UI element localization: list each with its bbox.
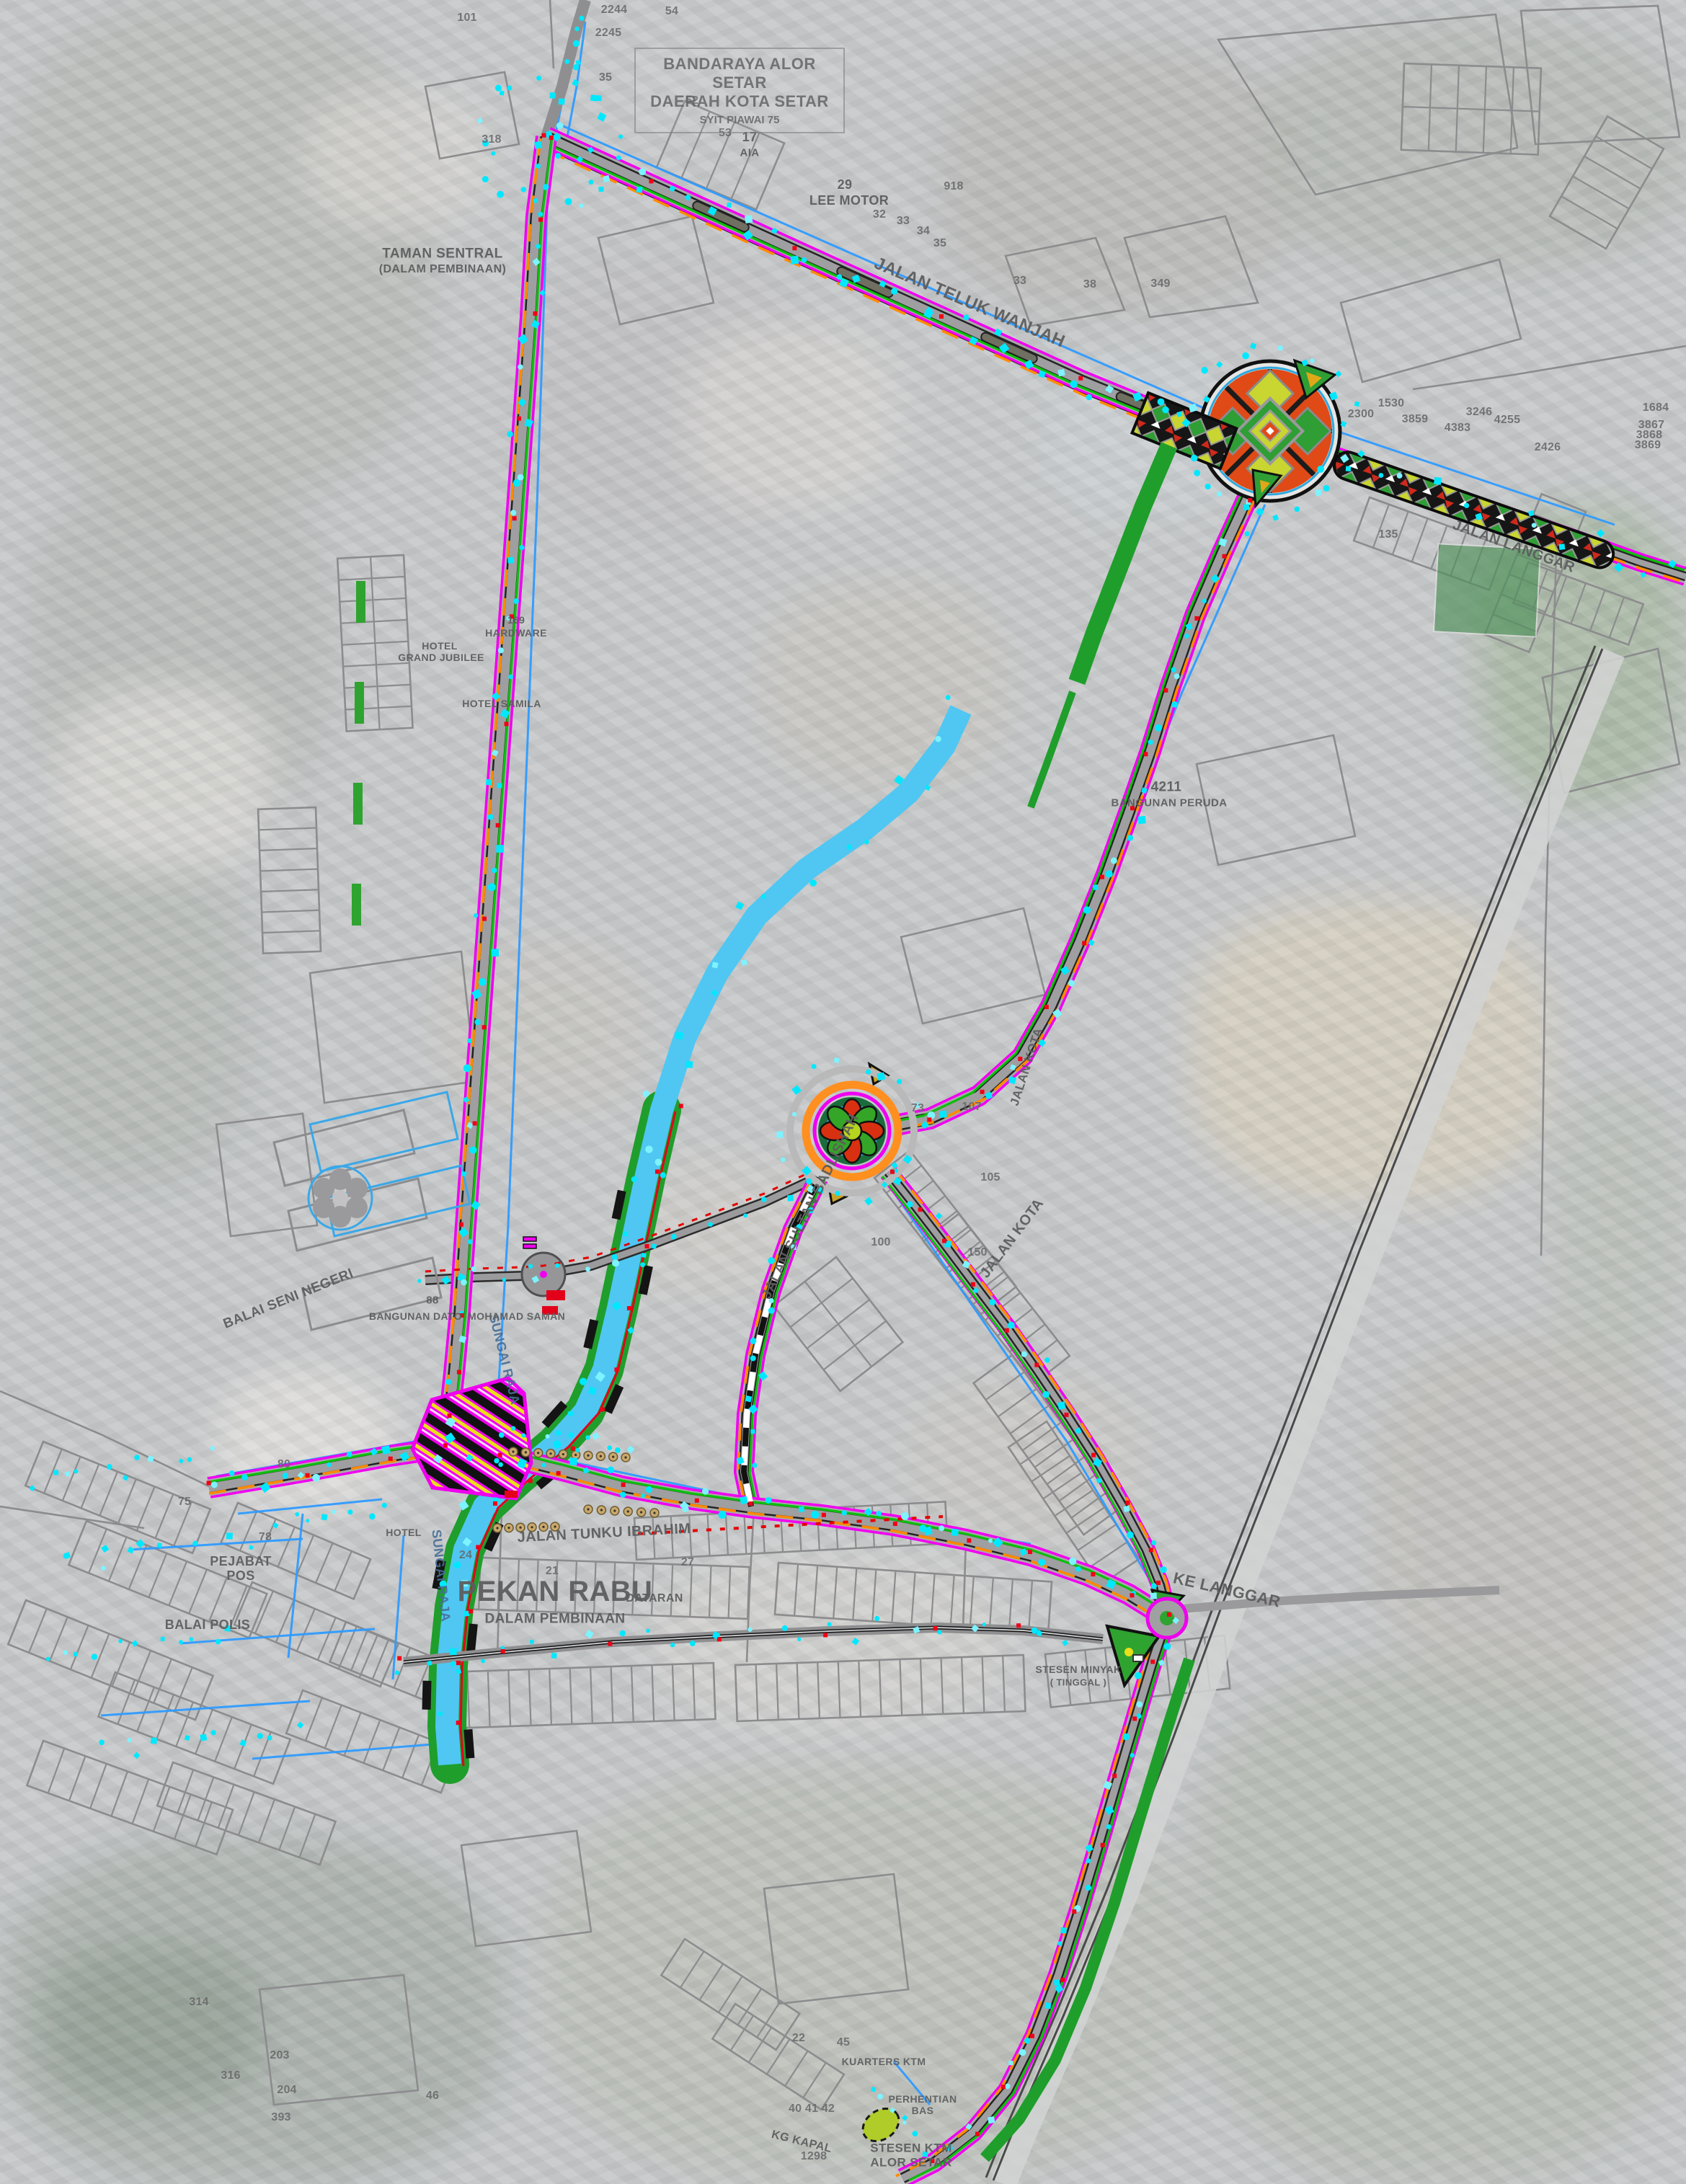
lot-number: 203 (270, 2050, 289, 2061)
lot-number: 33 (1013, 275, 1026, 287)
lot-number: 73 (911, 1103, 924, 1114)
place-label: 169 (507, 615, 525, 625)
lot-number: 107 (962, 1101, 981, 1113)
place-label: HOTEL (422, 641, 457, 651)
lot-number: 918 (944, 181, 963, 192)
lot-number: 3859 (1402, 414, 1428, 425)
road-label: JALAN TELUK WANJAH (871, 254, 1067, 350)
lot-number: 3246 (1466, 407, 1492, 418)
lot-number: 22 (792, 2033, 805, 2044)
place-label: STESEN MINYAK (1035, 1664, 1121, 1674)
lot-number: 318 (482, 134, 501, 146)
lot-number: 54 (665, 6, 678, 17)
lot-number: 135 (1378, 529, 1398, 541)
lot-number: 1298 (801, 2151, 827, 2162)
lot-number: 100 (871, 1237, 890, 1248)
road-label: JALAN TUNKU IBRAHIM (517, 1522, 691, 1545)
lot-number: 2245 (595, 27, 621, 39)
lot-number: 101 (457, 12, 476, 24)
place-label: BANGUNAN DATO' MOHAMAD SAMAN (369, 1311, 565, 1321)
lot-number: 150 (967, 1247, 987, 1259)
place-label: BAS (912, 2105, 934, 2116)
place-label: DALAM PEMBINAAN (485, 1612, 626, 1626)
map-labels-layer: JALAN TELUK WANJAHJALAN LANGGARJALAN SUL… (0, 0, 1686, 2184)
lot-number: 34 (917, 226, 930, 237)
lot-number: 35 (599, 72, 612, 84)
lot-number: 1684 (1643, 402, 1669, 414)
lot-number: 2426 (1535, 442, 1561, 453)
place-label: POS (226, 1569, 254, 1582)
place-label: (DALAM PEMBINAAN) (379, 264, 507, 275)
lot-number: 4255 (1494, 414, 1520, 426)
lot-number: 1530 (1378, 398, 1404, 409)
place-label: TAMAN SENTRAL (382, 247, 502, 261)
place-label: 88 (426, 1295, 439, 1306)
lot-number: 78 (259, 1532, 272, 1543)
road-label: JALAN SULTAN BADLISHAH (759, 1112, 861, 1302)
lot-number: 2244 (601, 4, 627, 16)
place-label: HOTEL (386, 1527, 421, 1537)
place-label: PEKAN RABU (458, 1577, 653, 1606)
lot-number: 75 (178, 1496, 191, 1508)
place-label: AIA (740, 148, 759, 159)
title-sheet: SYIT PIAWAI 75 (639, 114, 840, 126)
title-district: DAERAH KOTA SETAR (639, 92, 840, 111)
place-label: HOTEL SAMILA (462, 698, 541, 709)
road-label: SUNGAI RAJA (430, 1529, 452, 1623)
lot-number: 105 (980, 1172, 1000, 1184)
road-label: JALAN KOTA (977, 1197, 1046, 1281)
lot-number: 46 (426, 2090, 439, 2102)
place-label: 4211 (1151, 781, 1182, 794)
lot-number: 204 (277, 2085, 296, 2096)
lot-number: 393 (271, 2112, 290, 2123)
title-city: BANDARAYA ALOR SETAR (639, 55, 840, 92)
lot-number: 35 (933, 238, 946, 249)
map-stage: JALAN TELUK WANJAHJALAN LANGGARJALAN SUL… (0, 0, 1686, 2184)
lot-number: 80 (278, 1459, 290, 1470)
title-block: BANDARAYA ALOR SETAR DAERAH KOTA SETAR S… (634, 48, 845, 133)
place-label: ( TINGGAL ) (1050, 1678, 1107, 1687)
lot-number: 21 (546, 1566, 559, 1577)
place-label: PERHENTIAN (888, 2094, 957, 2104)
place-label: KUARTERS KTM (842, 2056, 926, 2067)
road-label: KE LANGGAR (1172, 1570, 1282, 1610)
place-label: HARDWARE (485, 628, 547, 638)
place-label: GRAND JUBILEE (398, 652, 484, 662)
lot-number: 349 (1150, 278, 1170, 290)
lot-number: 32 (873, 209, 886, 221)
lot-number: 4383 (1445, 422, 1470, 434)
place-label: BALAI POLIS (165, 1618, 250, 1631)
place-label: ALOR SETAR (870, 2157, 951, 2169)
lot-number: 3869 (1635, 440, 1661, 451)
lot-number: 33 (897, 216, 910, 227)
place-label: STESEN KTM (870, 2142, 952, 2154)
place-label: LEE MOTOR (809, 194, 889, 207)
road-label: SUNGAI RAJA (487, 1313, 523, 1406)
lot-number: 38 (1083, 279, 1096, 290)
lot-number: 24 (459, 1550, 472, 1561)
place-label: BANGUNAN PERUDA (1111, 798, 1227, 809)
lot-number: 2300 (1348, 409, 1374, 420)
road-label: JALAN LANGGAR (1451, 518, 1577, 575)
place-label: 29 (838, 178, 853, 191)
lot-number: 27 (681, 1557, 694, 1568)
lot-number: 40 41 42 (789, 2103, 835, 2115)
place-label: PEJABAT (210, 1555, 271, 1568)
lot-number: 314 (189, 1997, 208, 2008)
lot-number: 45 (837, 2037, 850, 2048)
road-label: JALAN KOTA (1008, 1026, 1045, 1107)
place-label: BALAI SENI NEGERI (221, 1266, 355, 1331)
place-label: DATARAN (626, 1593, 683, 1604)
lot-number: 316 (221, 2070, 240, 2082)
